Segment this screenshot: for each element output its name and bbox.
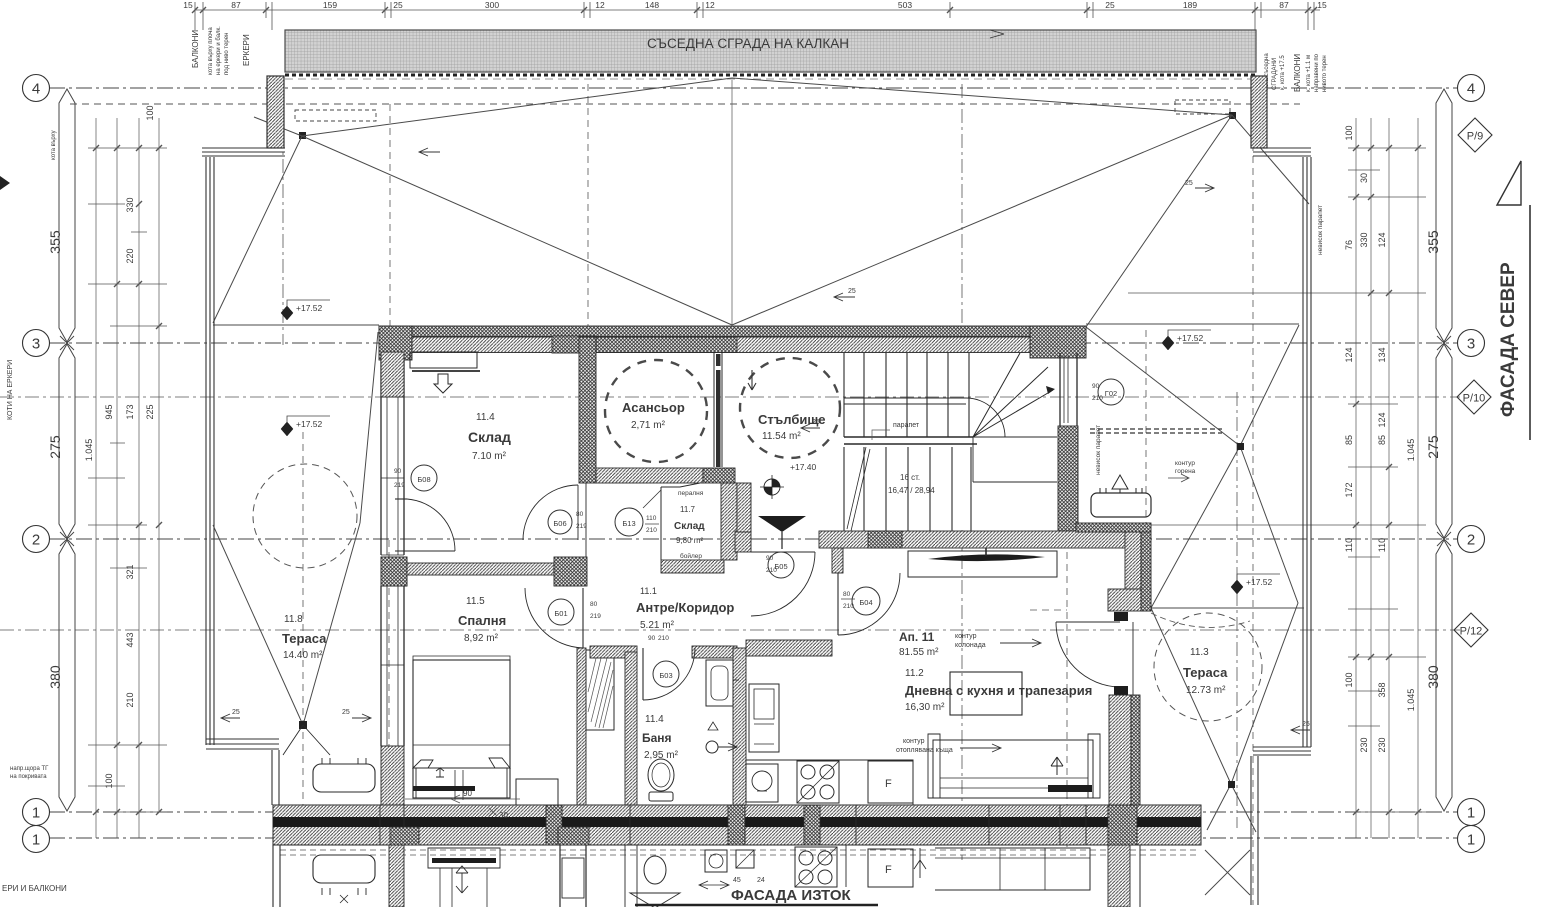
svg-text:+17.52: +17.52 <box>296 419 323 429</box>
svg-text:кота върху: кота върху <box>51 130 57 160</box>
svg-text:100: 100 <box>104 773 114 788</box>
svg-text:2,71 m²: 2,71 m² <box>631 420 666 431</box>
svg-text:1: 1 <box>32 805 40 822</box>
svg-text:11.5: 11.5 <box>466 596 485 607</box>
svg-text:ЕРИ И БАЛКОНИ: ЕРИ И БАЛКОНИ <box>2 884 67 893</box>
svg-text:25: 25 <box>1185 180 1193 187</box>
svg-text:Б13: Б13 <box>622 519 635 528</box>
svg-text:Б04: Б04 <box>859 598 872 607</box>
svg-text:1: 1 <box>1467 805 1475 822</box>
svg-text:219: 219 <box>576 523 587 530</box>
svg-text:на еркери и балк.: на еркери и балк. <box>216 26 222 75</box>
svg-text:горена: горена <box>1175 468 1196 475</box>
svg-text:1.045: 1.045 <box>84 439 94 462</box>
svg-text:90: 90 <box>1092 383 1100 390</box>
svg-text:F: F <box>885 778 892 790</box>
svg-text:11.7: 11.7 <box>680 505 696 514</box>
svg-text:под ниво терен: под ниво терен <box>224 33 230 75</box>
svg-text:контур: контур <box>955 633 977 640</box>
svg-text:СЪСЕДНА СГРАДА НА КАЛКАН: СЪСЕДНА СГРАДА НА КАЛКАН <box>647 36 849 51</box>
svg-text:14.40 m²: 14.40 m² <box>283 650 323 661</box>
svg-text:СГРАДАНИ: СГРАДАНИ <box>1272 58 1278 90</box>
svg-text:ФАСАДА СЕВЕР: ФАСАДА СЕВЕР <box>1498 262 1519 417</box>
svg-text:275: 275 <box>47 435 63 459</box>
svg-text:Баня: Баня <box>642 731 672 745</box>
svg-text:1: 1 <box>32 832 40 849</box>
svg-text:443: 443 <box>125 632 135 647</box>
svg-text:контур: контур <box>903 738 925 745</box>
svg-text:к. кота +17.5: к. кота +17.5 <box>1280 55 1286 90</box>
svg-text:100: 100 <box>1344 125 1354 140</box>
svg-text:отоплявана къща: отоплявана къща <box>896 747 953 754</box>
svg-text:189: 189 <box>1183 0 1197 10</box>
svg-text:100: 100 <box>1344 672 1354 687</box>
svg-text:230: 230 <box>1377 737 1387 752</box>
svg-text:Склад: Склад <box>674 521 705 532</box>
svg-text:+17.40: +17.40 <box>790 462 817 472</box>
svg-text:90: 90 <box>648 635 656 642</box>
svg-text:парапет: парапет <box>893 422 920 429</box>
svg-text:159: 159 <box>323 0 337 10</box>
svg-text:124: 124 <box>1377 232 1387 247</box>
svg-text:4: 4 <box>1467 81 1475 98</box>
svg-text:P/12: P/12 <box>1460 626 1483 638</box>
svg-text:4: 4 <box>32 81 40 98</box>
svg-text:8,92 m²: 8,92 m² <box>464 633 499 644</box>
svg-text:Ап. 11: Ап. 11 <box>899 630 935 644</box>
svg-text:+17.52: +17.52 <box>296 303 323 313</box>
svg-text:210: 210 <box>646 527 657 534</box>
svg-text:25: 25 <box>1302 721 1310 728</box>
svg-text:+17.52: +17.52 <box>1246 577 1273 587</box>
svg-text:210: 210 <box>766 567 777 574</box>
svg-text:16,30 m²: 16,30 m² <box>905 702 945 713</box>
svg-text:24: 24 <box>757 877 765 884</box>
svg-text:124: 124 <box>1377 412 1387 427</box>
svg-text:87: 87 <box>1279 0 1289 10</box>
svg-text:25: 25 <box>342 709 350 716</box>
svg-text:321: 321 <box>125 564 135 579</box>
svg-text:БАЛКОНИ: БАЛКОНИ <box>1293 54 1302 92</box>
svg-text:275: 275 <box>1425 435 1441 459</box>
svg-text:ЕРКЕРИ: ЕРКЕРИ <box>242 34 251 66</box>
svg-text:1.045: 1.045 <box>1406 439 1416 462</box>
svg-text:Б06: Б06 <box>553 519 566 528</box>
svg-text:5.21 m²: 5.21 m² <box>640 620 675 631</box>
svg-text:11.8: 11.8 <box>284 614 303 625</box>
svg-text:12: 12 <box>705 0 715 10</box>
svg-text:25: 25 <box>1105 0 1115 10</box>
svg-text:+17.52: +17.52 <box>1177 333 1204 343</box>
svg-text:148: 148 <box>645 0 659 10</box>
svg-text:F: F <box>885 864 892 876</box>
svg-text:330: 330 <box>125 197 135 212</box>
svg-text:230: 230 <box>1359 737 1369 752</box>
svg-text:110: 110 <box>646 515 657 522</box>
svg-text:100: 100 <box>145 105 155 120</box>
svg-text:на покривата: на покривата <box>10 774 47 780</box>
svg-text:210: 210 <box>125 692 135 707</box>
svg-text:напр.щора ТГ: напр.щора ТГ <box>10 766 49 772</box>
svg-text:219: 219 <box>590 613 601 620</box>
svg-text:кота върху плоча: кота върху плоча <box>208 27 214 75</box>
svg-text:87: 87 <box>231 0 241 10</box>
svg-text:колонада: колонада <box>955 642 986 649</box>
svg-text:358: 358 <box>1377 682 1387 697</box>
svg-text:30: 30 <box>1359 173 1369 183</box>
svg-text:380: 380 <box>1425 665 1441 689</box>
svg-text:300: 300 <box>485 0 499 10</box>
svg-text:Асансьор: Асансьор <box>622 400 685 415</box>
svg-text:134: 134 <box>1377 347 1387 362</box>
svg-text:330: 330 <box>1359 232 1369 247</box>
svg-text:P/10: P/10 <box>1463 393 1486 405</box>
svg-text:направени по: направени по <box>1314 53 1320 92</box>
svg-text:380: 380 <box>47 665 63 689</box>
svg-text:2: 2 <box>1467 532 1475 549</box>
svg-text:220: 220 <box>125 248 135 263</box>
svg-text:110: 110 <box>1344 538 1354 552</box>
svg-text:Б01: Б01 <box>554 609 567 618</box>
svg-text:2: 2 <box>32 532 40 549</box>
svg-text:Г02: Г02 <box>1105 389 1117 398</box>
svg-text:90: 90 <box>463 789 472 798</box>
svg-text:173: 173 <box>125 404 135 419</box>
svg-text:11.4: 11.4 <box>645 714 664 725</box>
svg-text:80: 80 <box>576 511 584 518</box>
svg-text:11.2: 11.2 <box>905 668 924 679</box>
svg-text:1.045: 1.045 <box>1406 689 1416 712</box>
svg-text:15: 15 <box>183 0 193 10</box>
svg-text:45: 45 <box>733 877 741 884</box>
svg-text:76: 76 <box>1344 240 1354 250</box>
svg-text:25: 25 <box>232 709 240 716</box>
svg-text:Б08: Б08 <box>417 475 430 484</box>
svg-text:11.3: 11.3 <box>1190 647 1209 658</box>
svg-text:172: 172 <box>1344 482 1354 497</box>
svg-text:КОТИ НА ЕРКЕРИ: КОТИ НА ЕРКЕРИ <box>7 360 14 420</box>
svg-text:90: 90 <box>766 555 774 562</box>
svg-text:219: 219 <box>394 482 405 489</box>
svg-text:11.4: 11.4 <box>476 412 495 423</box>
svg-text:85: 85 <box>1377 435 1387 445</box>
svg-text:503: 503 <box>898 0 912 10</box>
svg-text:контур: контур <box>1175 460 1195 467</box>
svg-text:80: 80 <box>590 601 598 608</box>
svg-text:124: 124 <box>1344 347 1354 362</box>
svg-text:3: 3 <box>1467 336 1475 353</box>
svg-text:85: 85 <box>1344 435 1354 445</box>
svg-text:225: 225 <box>145 404 155 419</box>
svg-text:30: 30 <box>499 811 508 820</box>
svg-text:81.55 m²: 81.55 m² <box>899 647 939 658</box>
svg-text:25: 25 <box>812 419 820 426</box>
svg-text:бойлер: бойлер <box>680 552 702 560</box>
svg-text:15: 15 <box>1317 0 1327 10</box>
svg-text:Тераса: Тераса <box>1183 665 1228 680</box>
svg-text:невисок парапет: невисок парапет <box>1317 205 1324 255</box>
svg-text:1: 1 <box>1467 832 1475 849</box>
svg-text:945: 945 <box>104 404 114 419</box>
svg-text:ФАСАДА ИЗТОК: ФАСАДА ИЗТОК <box>731 887 851 904</box>
svg-text:БАЛКОНИ: БАЛКОНИ <box>191 30 200 68</box>
svg-text:25: 25 <box>393 0 403 10</box>
svg-text:к. кота +1.1 м: к. кота +1.1 м <box>1306 55 1312 92</box>
svg-text:16 ст.: 16 ст. <box>900 473 920 482</box>
svg-text:Б03: Б03 <box>659 671 672 680</box>
svg-text:9,80 m²: 9,80 m² <box>676 536 703 545</box>
svg-text:12.73 m²: 12.73 m² <box>1186 685 1226 696</box>
svg-text:210: 210 <box>1092 395 1103 402</box>
svg-text:210: 210 <box>843 603 854 610</box>
svg-text:3: 3 <box>32 336 40 353</box>
svg-text:P/9: P/9 <box>1467 131 1484 143</box>
svg-text:11.1: 11.1 <box>640 586 657 596</box>
svg-text:355: 355 <box>47 230 63 254</box>
svg-text:Спалня: Спалня <box>458 613 506 628</box>
svg-text:355: 355 <box>1425 230 1441 254</box>
svg-text:11.54 m²: 11.54 m² <box>762 431 801 442</box>
svg-text:80: 80 <box>843 591 851 598</box>
svg-text:Склад: Склад <box>468 429 511 445</box>
svg-text:110: 110 <box>1377 538 1387 552</box>
svg-text:12: 12 <box>595 0 605 10</box>
svg-text:210: 210 <box>658 635 669 642</box>
svg-text:нивото терен: нивото терен <box>1322 55 1328 92</box>
svg-text:90: 90 <box>394 468 402 475</box>
svg-text:Дневна с кухня и трапезария: Дневна с кухня и трапезария <box>905 683 1092 698</box>
svg-text:25: 25 <box>848 288 856 295</box>
svg-text:невисок парапет: невисок парапет <box>1095 425 1102 475</box>
svg-text:7.10 m²: 7.10 m² <box>472 451 507 462</box>
svg-text:Антре/Коридор: Антре/Коридор <box>636 600 734 615</box>
svg-text:16,47 / 28,94: 16,47 / 28,94 <box>888 486 935 495</box>
svg-text:пералня: пералня <box>678 490 704 497</box>
svg-text:Тераса: Тераса <box>282 631 327 646</box>
